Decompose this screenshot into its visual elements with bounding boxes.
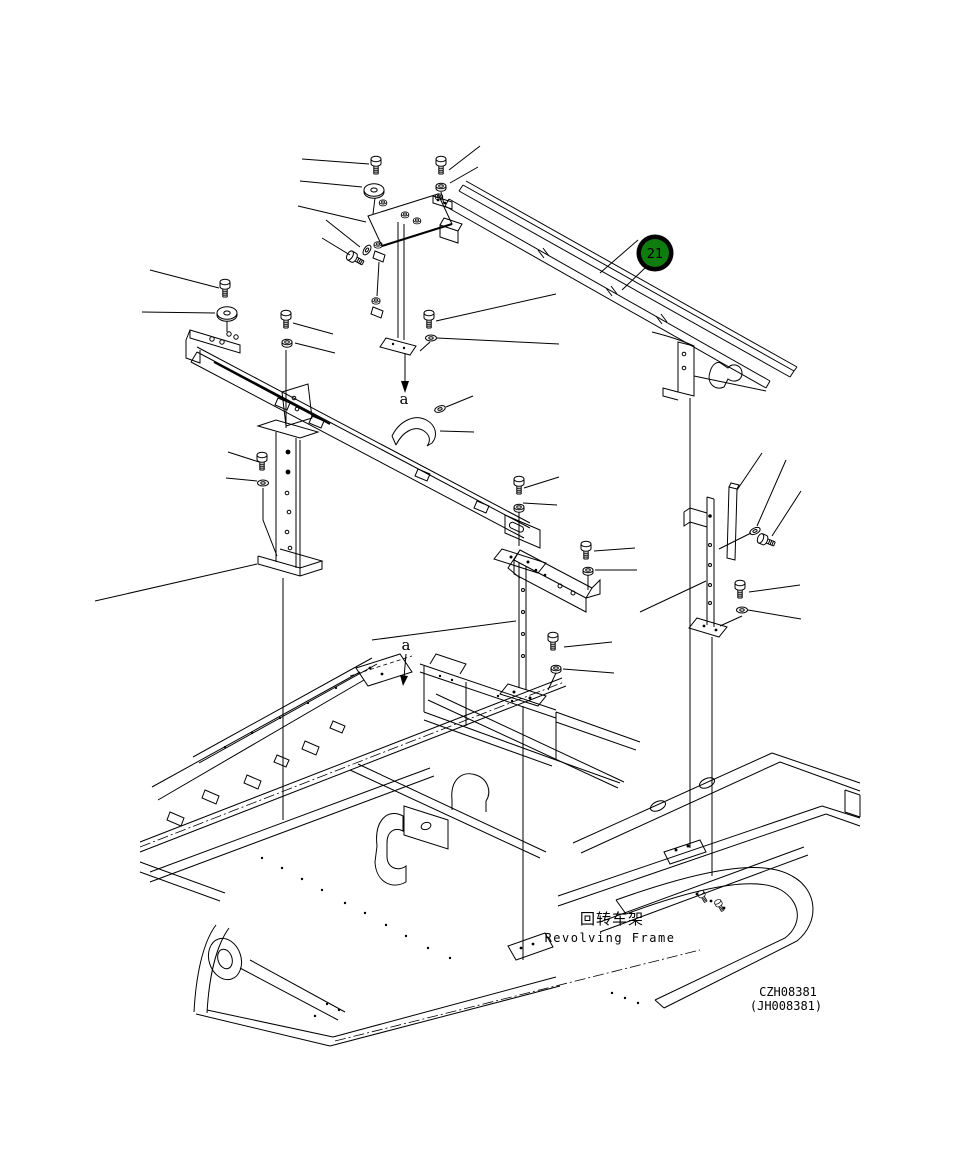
revolving-frame <box>140 654 860 1046</box>
fasteners <box>217 156 776 673</box>
frame-title-en: Revolving Frame <box>545 931 676 945</box>
middle-rail-assembly <box>186 330 540 548</box>
side-strip-plate <box>727 483 739 560</box>
upper-rail-part-21 <box>433 181 797 400</box>
right-post <box>684 483 739 637</box>
parts-diagram-page: 21 a <box>0 0 965 1163</box>
view-label-a-top: a <box>400 390 409 408</box>
drawing-number-alt: (JH008381) <box>750 999 822 1013</box>
left-post <box>257 420 322 576</box>
frame-title-zh: 回转车架 <box>580 910 644 928</box>
view-arrow-top: a <box>400 354 409 408</box>
view-label-a-bottom: a <box>402 636 411 654</box>
exploded-view-drawing: 21 a <box>0 0 965 1163</box>
badge-number: 21 <box>647 247 664 262</box>
drawing-number: CZH08381 <box>759 985 817 999</box>
annotations: 回转车架 Revolving Frame CZH08381 (JH008381) <box>545 910 823 1013</box>
top-bracket-assembly: a <box>368 194 462 408</box>
